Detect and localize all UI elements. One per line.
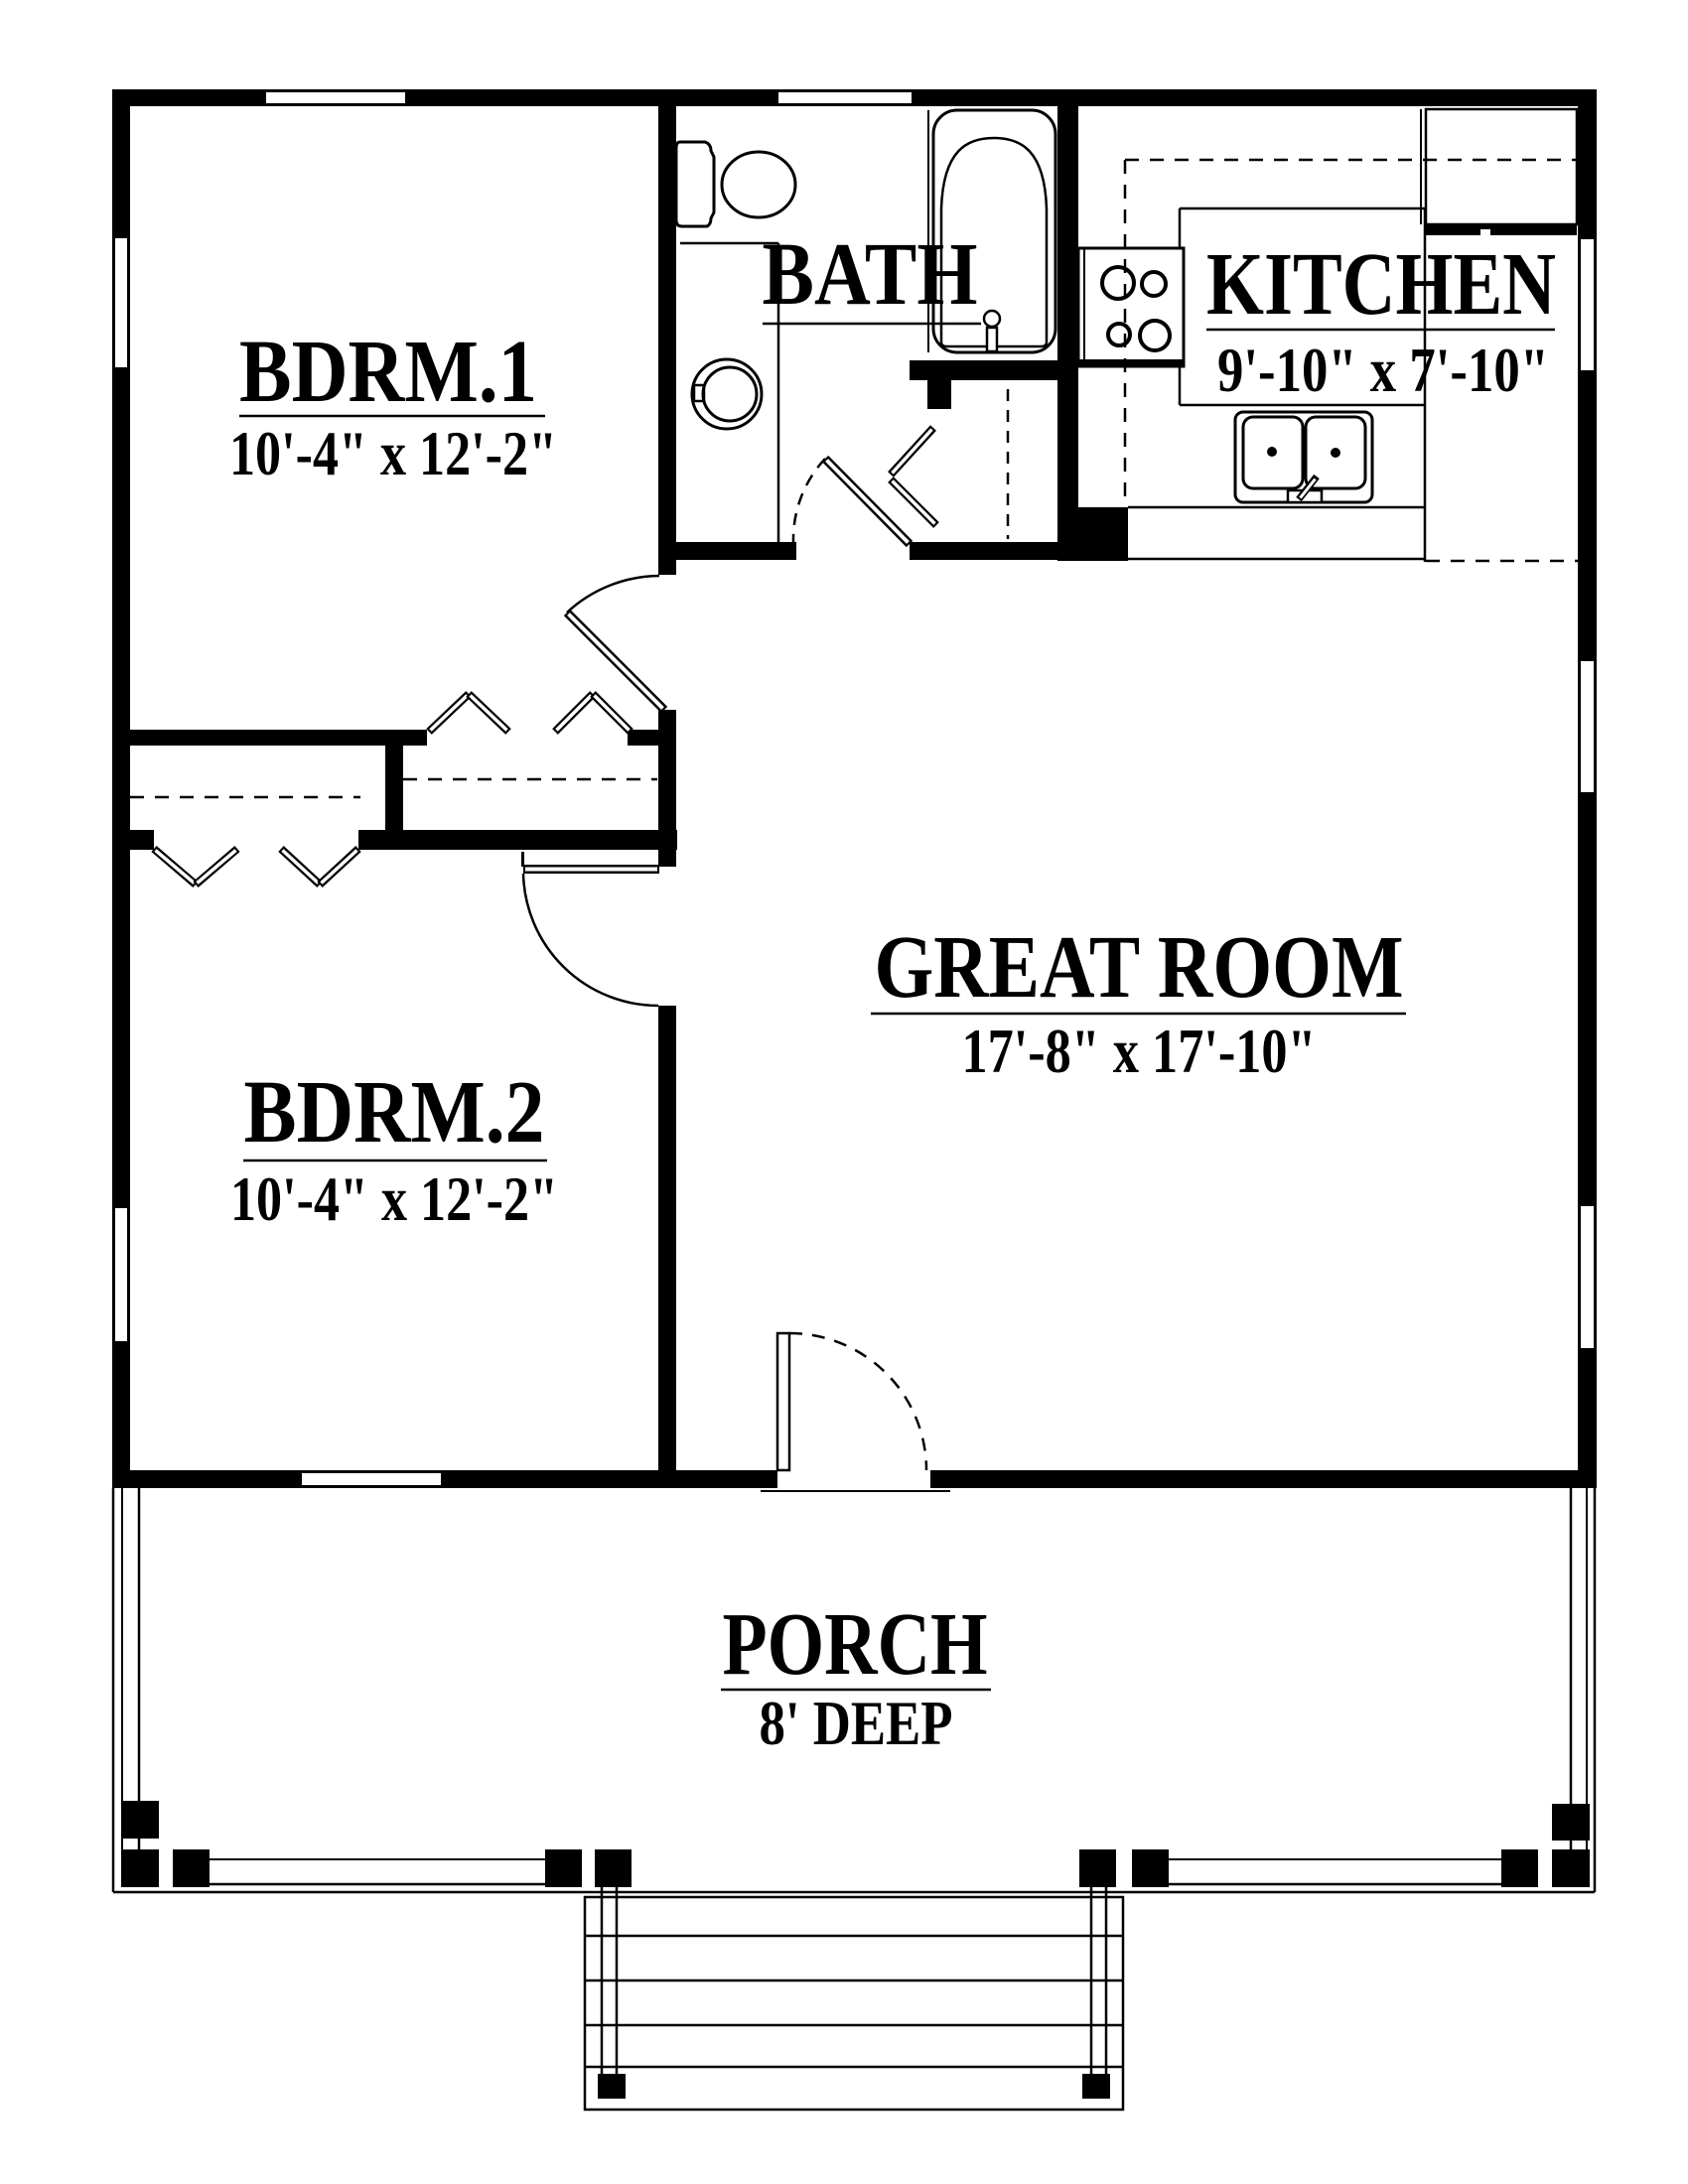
- svg-text:BATH: BATH: [763, 225, 978, 324]
- svg-text:KITCHEN: KITCHEN: [1206, 235, 1556, 334]
- svg-text:17'-8" x 17'-10": 17'-8" x 17'-10": [962, 1017, 1317, 1086]
- svg-text:BDRM.2: BDRM.2: [244, 1063, 545, 1161]
- svg-text:BDRM.1: BDRM.1: [239, 323, 537, 421]
- svg-text:10'-4" x 12'-2": 10'-4" x 12'-2": [229, 419, 557, 488]
- svg-text:8' DEEP: 8' DEEP: [760, 1689, 953, 1758]
- svg-text:GREAT ROOM: GREAT ROOM: [875, 918, 1404, 1017]
- svg-text:10'-4" x 12'-2": 10'-4" x 12'-2": [230, 1164, 558, 1234]
- svg-text:PORCH: PORCH: [723, 1595, 988, 1694]
- svg-text:9'-10" x 7'-10": 9'-10" x 7'-10": [1217, 336, 1549, 405]
